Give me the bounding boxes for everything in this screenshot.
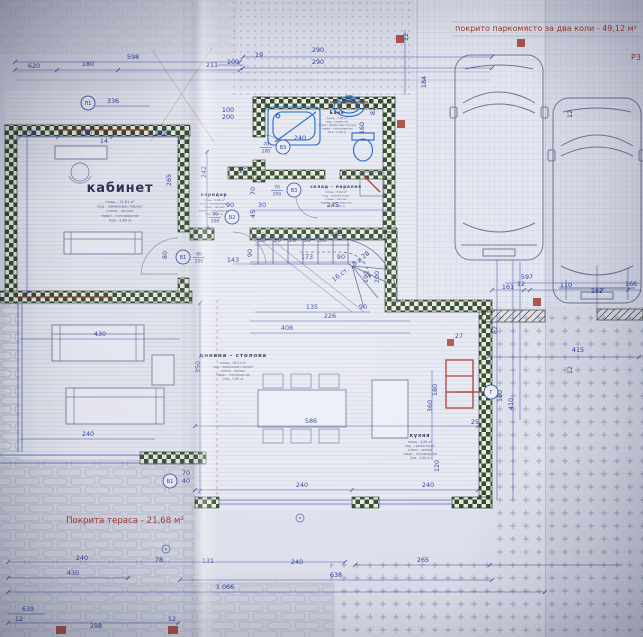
dim-label: 240 xyxy=(82,430,94,438)
room-spec: площ - 14,61 м² xyxy=(105,200,135,204)
dim-label: 143 xyxy=(227,256,239,264)
dim-label: 12 xyxy=(15,615,23,623)
dim-label: 161 xyxy=(502,283,514,291)
dim-label: 184 xyxy=(420,76,428,88)
dim-label: 240 xyxy=(291,558,303,566)
dim-label: 45 xyxy=(249,210,257,218)
sofa-2 xyxy=(66,388,164,424)
dim-label: 290 xyxy=(312,58,324,66)
door-size-num: 70 xyxy=(274,185,280,191)
dim-label: 586 xyxy=(305,417,317,425)
dim-label: 12 xyxy=(566,110,574,118)
parking-title: покрито паркомясто за два коли - 49,12 м… xyxy=(455,24,637,33)
room-spec: Нсв - 2,60 м xyxy=(327,204,345,208)
dim-label: 263 xyxy=(331,230,343,238)
door-size-den: 200 xyxy=(262,149,271,155)
door-size-den: 200 xyxy=(195,259,204,265)
pavement-dots-bottom xyxy=(330,560,643,637)
room-name-dnevna: дневна - столова xyxy=(199,353,267,359)
dim-label: 30 xyxy=(258,236,266,244)
dining-table xyxy=(258,390,346,427)
dim-label: 240 xyxy=(296,481,308,489)
dim-label: 265 xyxy=(165,174,173,186)
door-size-den: 200 xyxy=(211,219,220,225)
door-size-num: 70 xyxy=(263,142,269,148)
dim-label: 25 xyxy=(471,418,479,426)
door-tag: Б1 xyxy=(167,479,174,485)
dim-label: 30 xyxy=(273,236,281,244)
column-marker xyxy=(397,120,405,128)
dim-label: 90 xyxy=(337,253,345,261)
dim-label: 639 xyxy=(22,605,34,613)
room-spec: Нсв - 2,60 м xyxy=(109,218,132,222)
column-marker xyxy=(447,339,454,346)
dim-label: 12 xyxy=(566,366,574,374)
door-tag: В3 xyxy=(280,145,287,151)
dim-label: 415 xyxy=(572,346,584,354)
coffee-table xyxy=(152,355,174,385)
dim-label: 12 xyxy=(402,33,410,41)
door-tag: Г xyxy=(489,390,492,396)
dim-label: 282 xyxy=(591,287,603,295)
dim-label: 78 xyxy=(155,556,163,564)
floor-plan-drawing: 5986201802113369515016914100192902901218… xyxy=(0,0,643,637)
dim-label: 82 xyxy=(491,326,499,334)
room-name-kuhnya: кухня xyxy=(410,433,431,439)
office-sofa xyxy=(64,232,142,254)
dim-label: 30 xyxy=(303,236,311,244)
column-marker xyxy=(533,298,541,306)
dim-label: 1 066 xyxy=(216,583,234,591)
dim-label: 135 xyxy=(306,303,318,311)
dim-label: 25 xyxy=(239,167,247,175)
column-marker xyxy=(168,626,178,634)
dim-label: 211 xyxy=(206,61,218,69)
door-tag: В3 xyxy=(291,188,298,194)
dim-label: 19 xyxy=(255,51,263,59)
dim-label: 200 xyxy=(373,271,381,283)
room-name-kabinet: кабинет xyxy=(87,181,154,196)
dim-label: 80 xyxy=(161,251,169,259)
dim-label: 27 xyxy=(455,332,463,340)
paper-textures xyxy=(0,0,643,637)
door-tag: В1 xyxy=(180,255,187,261)
dim-label: 70 xyxy=(182,469,190,477)
dim-label: 160 xyxy=(358,122,366,134)
dim-label: 408 xyxy=(281,324,293,332)
room-spec: под - ламиниран паркет xyxy=(97,205,143,209)
dim-label: 638 xyxy=(330,571,342,579)
door-size-num: 80 xyxy=(196,252,202,258)
door-tag: П1 xyxy=(85,101,92,107)
room-spec: Нсв - 2,60 м xyxy=(328,130,346,134)
beam-section xyxy=(597,309,643,320)
dim-label: 410 xyxy=(507,398,515,410)
column-marker xyxy=(56,626,66,634)
dim-label: 298 xyxy=(90,622,102,630)
dim-label: 350 xyxy=(194,361,202,373)
dim-label: 30 xyxy=(258,201,266,209)
room-spec: стени - латекс xyxy=(106,209,134,213)
dim-label: 131 xyxy=(202,557,214,565)
dim-label: 430 xyxy=(94,330,106,338)
room-spec: таван - гипсокартон xyxy=(101,214,140,218)
dim-label: 598 xyxy=(127,53,139,61)
door-size-num: 90 xyxy=(212,212,218,218)
dim-label: 430 xyxy=(67,569,79,577)
dim-label: 90 xyxy=(359,303,367,311)
dim-label: 70 xyxy=(249,187,257,195)
blueprint-photo: 5986201802113369515016914100192902901218… xyxy=(0,0,643,637)
dim-label: 90 xyxy=(246,249,254,257)
dim-label: 290 xyxy=(312,46,324,54)
dim-label: 173 xyxy=(301,253,313,261)
dim-label: 265 xyxy=(417,556,429,564)
dim-label: 14 xyxy=(100,137,108,145)
door-size-den: 200 xyxy=(273,192,282,198)
dim-label: 166 xyxy=(625,280,637,288)
dim-label: 12 xyxy=(517,280,525,288)
dim-label: 30 xyxy=(288,236,296,244)
dim-label: 240 xyxy=(422,481,434,489)
dim-label: 150 xyxy=(80,129,92,137)
beam-section xyxy=(482,310,545,322)
dim-label: 360 xyxy=(426,400,434,412)
kitchen-island xyxy=(372,380,408,438)
room-name-banya: Баня xyxy=(330,110,345,115)
dim-label: 40 xyxy=(182,477,190,485)
dim-label: 240 xyxy=(76,554,88,562)
dim-label: 100 xyxy=(227,58,239,66)
dim-label: 180 xyxy=(431,384,439,396)
column-marker xyxy=(517,39,525,47)
dim-label: 226 xyxy=(324,312,336,320)
dim-label: 169 xyxy=(154,129,166,137)
dim-label: 30 xyxy=(318,236,326,244)
room-spec: Нсв - 2,80 м xyxy=(223,377,243,381)
dim-label: 120 xyxy=(433,460,441,472)
dim-label: 12 xyxy=(168,615,176,623)
dim-label: 180 xyxy=(82,60,94,68)
pavement-dots-right xyxy=(492,307,643,562)
dim-label: 620 xyxy=(28,62,40,70)
dim-label: 82 xyxy=(369,107,377,115)
dim-label: 200 xyxy=(222,113,234,121)
dim-label: 110 xyxy=(560,281,572,289)
dim-label: 242 xyxy=(200,166,208,178)
corner-note: Р3 xyxy=(631,53,641,62)
dim-label: 95 xyxy=(29,129,37,137)
room-spec: Нсв - 2,60 м xyxy=(410,456,430,460)
dim-label: 336 xyxy=(107,97,119,105)
dim-label: 190 xyxy=(362,271,370,283)
room-name-koridor: коридор xyxy=(201,192,228,197)
door-tag: В2 xyxy=(229,215,236,221)
room-name-sklad: склад - пералня xyxy=(310,184,361,189)
dim-label: 240 xyxy=(294,134,306,142)
desk xyxy=(55,146,107,159)
terrace-label: Покрита тераса - 21,68 м² xyxy=(66,516,184,526)
